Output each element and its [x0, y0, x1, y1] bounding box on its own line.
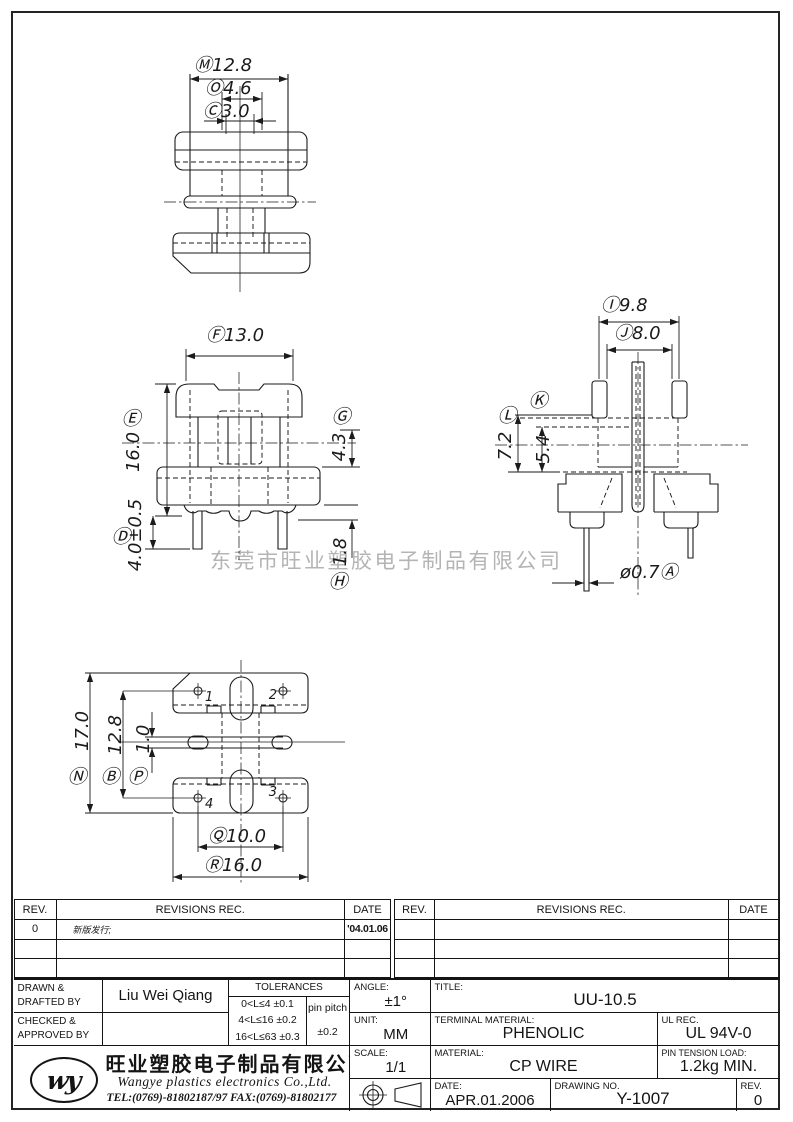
dim-n-value: 17.0 — [72, 711, 93, 751]
checked-by-label-cell: CHECKED & APPROVED BY — [14, 1013, 104, 1046]
date-cell — [729, 920, 779, 940]
dim-k-letter: Ⓚ — [528, 390, 550, 412]
rev-cell — [15, 959, 57, 977]
dim-g-value: 4.3 — [329, 433, 350, 462]
rev-cell: 0 — [15, 920, 57, 940]
revisions-header: REVISIONS REC. — [435, 900, 729, 920]
pin-2-label: 2 — [269, 688, 277, 703]
revision-desc-cell — [57, 940, 346, 960]
scale-cell: SCALE: 1/1 — [350, 1046, 431, 1079]
checked-label-line1: CHECKED & — [18, 1016, 76, 1027]
company-cell: wy 旺业塑胶电子制品有限公司 Wangye plastics electron… — [14, 1046, 351, 1111]
pin-4-label: 4 — [205, 797, 213, 812]
revisions-header: REVISIONS REC. — [57, 900, 346, 920]
angle-value: ±1° — [350, 993, 430, 1010]
revision-desc-cell: 新版发行; — [57, 920, 346, 940]
pin-pitch-value: ±0.2 — [306, 1020, 349, 1044]
rev-header: REV. — [395, 900, 435, 920]
tolerance-values: 0<L≤4 ±0.1 4<L≤16 ±0.2 16<L≤63 ±0.3 — [229, 996, 307, 1045]
dim-h-letter: Ⓗ — [328, 571, 350, 593]
company-name-cn: 旺业塑胶电子制品有限公司 — [106, 1048, 344, 1077]
date-cell: '04.01.06 — [345, 920, 390, 940]
dim-d-value: 4.0±0.5 — [125, 499, 146, 571]
dim-k-value: 5.4 — [533, 435, 554, 464]
dim-e-letter: Ⓔ — [121, 408, 143, 430]
angle-cell: ANGLE: ±1° — [350, 980, 431, 1013]
revision-desc-cell — [435, 959, 729, 977]
company-logo-text: wy — [45, 1066, 81, 1095]
dim-h-value: 1.8 — [330, 538, 351, 567]
drawn-by-label-cell: DRAWN & DRAFTED BY — [14, 980, 104, 1013]
pin-1-label: 1 — [205, 690, 213, 705]
revision-desc-cell — [435, 940, 729, 960]
front-view-geometry — [122, 372, 356, 560]
dim-o-label: Ⓞ4.6 — [205, 78, 252, 99]
dim-l-letter: Ⓛ — [497, 405, 519, 427]
terminal-material-cell: TERMINAL MATERIAL: PHENOLIC — [431, 1013, 658, 1046]
ul-rec-value: UL 94V-0 — [658, 1025, 780, 1043]
drawing-no-value: Y-1007 — [551, 1089, 736, 1109]
dim-l-value: 7.2 — [495, 432, 516, 461]
pin-tension-cell: PIN TENSION LOAD: 1.2kg MIN. — [658, 1046, 780, 1079]
date-cell — [345, 940, 390, 960]
tolerance-row-1: 0<L≤4 ±0.1 — [229, 996, 306, 1012]
dim-a-label: ø0.7Ⓐ — [619, 562, 681, 583]
tolerances-title: TOLERANCES — [229, 980, 349, 997]
title-cell: TITLE: UU-10.5 — [431, 980, 780, 1013]
date-cell: DATE: APR.01.2006 — [431, 1079, 551, 1111]
angle-label: ANGLE: — [354, 982, 389, 993]
dim-c-label: Ⓒ3.0 — [203, 101, 250, 122]
pin-tension-value: 1.2kg MIN. — [658, 1058, 780, 1076]
drawn-label-line2: DRAFTED BY — [18, 997, 81, 1008]
material-value: CP WIRE — [431, 1058, 657, 1076]
unit-value: MM — [350, 1026, 430, 1043]
dimension-labels: Ⓜ12.8 Ⓞ4.6 Ⓒ3.0 Ⓕ13.0 Ⓔ 16.0 Ⓓ 4.0±0.5 Ⓖ… — [67, 55, 680, 876]
dim-q-label: Ⓠ10.0 — [208, 826, 266, 847]
company-tel-fax: TEL:(0769)-81802187/97 FAX:(0769)-818021… — [94, 1092, 350, 1104]
rev-cell — [395, 920, 435, 940]
dim-b-value: 12.8 — [105, 715, 126, 755]
dim-n-letter: Ⓝ — [67, 766, 89, 788]
revision-table-left: REV. REVISIONS REC. DATE 0 新版发行; '04.01.… — [14, 899, 392, 978]
dim-b-letter: Ⓑ — [100, 766, 122, 788]
front-view-dimensions — [145, 349, 360, 558]
drawn-by-name: Liu Wei Qiang — [103, 987, 228, 1004]
scale-value: 1/1 — [350, 1059, 430, 1076]
date-cell — [729, 940, 779, 960]
rev-no-value: 0 — [737, 1092, 780, 1109]
rev-cell — [395, 940, 435, 960]
projection-symbol-cell — [350, 1079, 431, 1111]
unit-cell: UNIT: MM — [350, 1013, 431, 1046]
drawn-by-value-cell: Liu Wei Qiang — [103, 980, 229, 1013]
third-angle-projection-icon — [351, 1080, 429, 1110]
rev-no-cell: REV. 0 — [737, 1079, 780, 1111]
ul-rec-cell: UL REC. UL 94V-0 — [658, 1013, 780, 1046]
tolerance-row-2: 4<L≤16 ±0.2 — [229, 1012, 306, 1028]
dim-p-letter: Ⓟ — [127, 766, 149, 788]
drawn-label-line1: DRAWN & — [18, 983, 65, 994]
rev-cell — [395, 959, 435, 977]
dim-g-letter: Ⓖ — [331, 406, 353, 428]
revision-table-right: REV. REVISIONS REC. DATE — [394, 899, 780, 978]
tolerance-row-3: 16<L≤63 ±0.3 — [229, 1029, 306, 1045]
company-logo: wy — [30, 1057, 98, 1103]
pin-tension-label: PIN TENSION LOAD: — [662, 1048, 747, 1058]
date-cell — [729, 959, 779, 977]
rev-header: REV. — [15, 900, 57, 920]
pin-pitch-label: pin pitch — [306, 996, 349, 1020]
rev-no-label: REV. — [741, 1081, 762, 1092]
title-value: UU-10.5 — [431, 990, 780, 1010]
date-header: DATE — [345, 900, 390, 920]
scale-label: SCALE: — [354, 1048, 388, 1059]
rev-cell — [15, 940, 57, 960]
dim-j-label: Ⓙ8.0 — [614, 323, 661, 344]
side-view-geometry — [495, 352, 748, 597]
pin-3-label: 3 — [269, 785, 277, 800]
drawing-canvas: Ⓜ12.8 Ⓞ4.6 Ⓒ3.0 Ⓕ13.0 Ⓔ 16.0 Ⓓ 4.0±0.5 Ⓖ… — [0, 0, 793, 900]
dim-m-label: Ⓜ12.8 — [194, 55, 252, 76]
checked-label-line2: APPROVED BY — [18, 1030, 90, 1041]
tolerances-cell: TOLERANCES 0<L≤4 ±0.1 4<L≤16 ±0.2 16<L≤6… — [229, 980, 350, 1046]
material-cell: MATERIAL: CP WIRE — [431, 1046, 658, 1079]
date-value: APR.01.2006 — [431, 1092, 550, 1109]
dim-p-value: 1.0 — [133, 725, 154, 754]
revision-desc-cell — [435, 920, 729, 940]
date-header: DATE — [729, 900, 779, 920]
drawing-no-cell: DRAWING NO. Y-1007 — [551, 1079, 737, 1111]
revision-desc-cell — [57, 959, 346, 977]
company-name-en: Wangye plastics electronics Co.,Ltd. — [106, 1074, 344, 1090]
title-block: DRAWN & DRAFTED BY Liu Wei Qiang CHECKED… — [14, 978, 780, 1109]
drawing-sheet: 东莞市旺业塑胶电子制品有限公司 — [0, 0, 793, 1122]
dim-r-label: Ⓡ16.0 — [204, 855, 262, 876]
date-cell — [345, 959, 390, 977]
pin-pitch-tolerance: pin pitch ±0.2 — [306, 996, 349, 1045]
dim-i-label: Ⓘ9.8 — [601, 295, 648, 316]
checked-by-value-cell — [103, 1013, 229, 1046]
date-label: DATE: — [435, 1081, 462, 1092]
terminal-material-value: PHENOLIC — [431, 1025, 657, 1043]
dim-f-label: Ⓕ13.0 — [206, 325, 264, 346]
dim-e-value: 16.0 — [123, 432, 144, 472]
unit-label: UNIT: — [354, 1015, 378, 1026]
